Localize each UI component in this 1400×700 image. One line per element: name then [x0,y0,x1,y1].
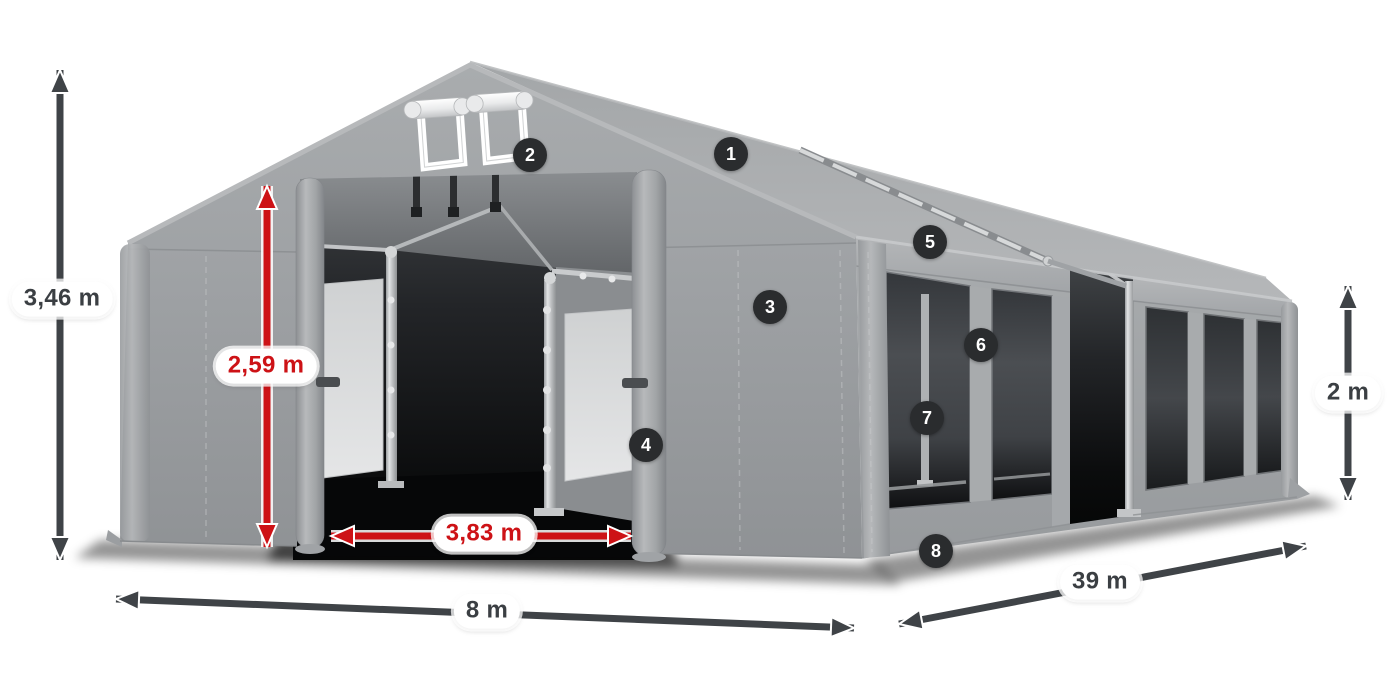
door-strap [316,377,340,387]
pole-behind-mesh [921,294,929,484]
dimension-label-total-height: 3,46 m [12,282,113,317]
side-open-section [1070,250,1141,524]
door-strap [622,378,648,388]
dimension-label-width: 8 m [454,594,520,629]
callout-badge-6[interactable]: 6 [964,328,998,362]
side-window-4 [1204,314,1244,482]
callout-badge-5[interactable]: 5 [913,225,947,259]
callout-badge-7[interactable]: 7 [910,401,944,435]
entrance-interior [293,168,643,560]
side-pole [1125,281,1134,513]
far-corner-strip [1281,302,1298,498]
front-left-corner [120,244,150,542]
dimension-label-side-height: 2 m [1315,376,1381,411]
callout-badge-8[interactable]: 8 [919,534,953,568]
interior-window-panel-right [565,309,633,481]
callout-badge-3[interactable]: 3 [753,290,787,324]
side-mullion-3 [1244,319,1257,476]
dimension-label-entrance-height: 2,59 m [216,349,317,384]
far-corner-skirt [1288,478,1310,499]
dimension-label-length: 39 m [1060,565,1140,600]
tent-illustration [0,0,1400,700]
side-window-1 [886,272,970,509]
callout-badge-1[interactable]: 1 [714,137,748,171]
callout-badge-4[interactable]: 4 [629,428,663,462]
side-mullion-1 [970,286,992,502]
side-window-2 [992,289,1052,500]
side-mullion-2 [1188,312,1204,484]
side-window-3 [1146,307,1188,490]
tent-product-diagram: 3,46 m 2,59 m 3,83 m 8 m 39 m 2 m 1 2 3 … [0,0,1400,700]
callout-badge-2[interactable]: 2 [513,138,547,172]
dimension-label-entrance-width: 3,83 m [434,517,535,552]
side-edge-strip [1052,296,1070,527]
